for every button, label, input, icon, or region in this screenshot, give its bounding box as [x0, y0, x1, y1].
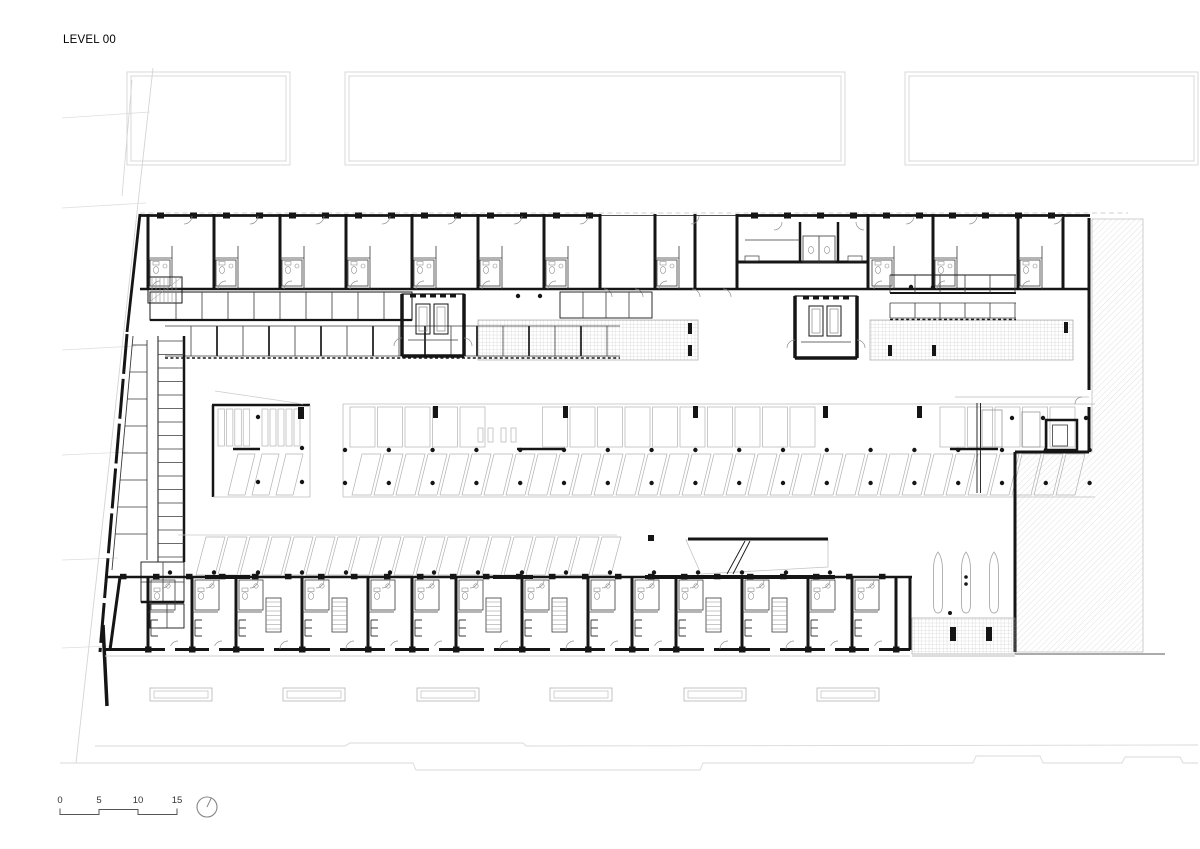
context-streets — [60, 68, 1198, 770]
north-apartment-band — [127, 213, 1090, 333]
floor-plan-canvas: LEVEL 00 0 5 10 15 — [0, 0, 1200, 849]
scale-bar: 0 5 10 15 — [57, 795, 182, 815]
street-planters — [150, 688, 879, 701]
neighbor-building-hatch — [1015, 219, 1143, 652]
scale-label-0: 0 — [57, 795, 62, 806]
scale-label-15: 15 — [172, 795, 183, 806]
scale-label-5: 5 — [96, 795, 101, 806]
plan-title: LEVEL 00 — [63, 34, 116, 46]
south-apartment-band — [105, 570, 912, 656]
sheet: LEVEL 00 0 5 10 15 — [0, 0, 1200, 849]
scale-bar-line — [60, 809, 177, 815]
north-indicator-icon — [197, 797, 217, 817]
parking-garage — [178, 218, 1095, 652]
east-walkway — [912, 552, 1015, 656]
scale-label-10: 10 — [133, 795, 144, 806]
